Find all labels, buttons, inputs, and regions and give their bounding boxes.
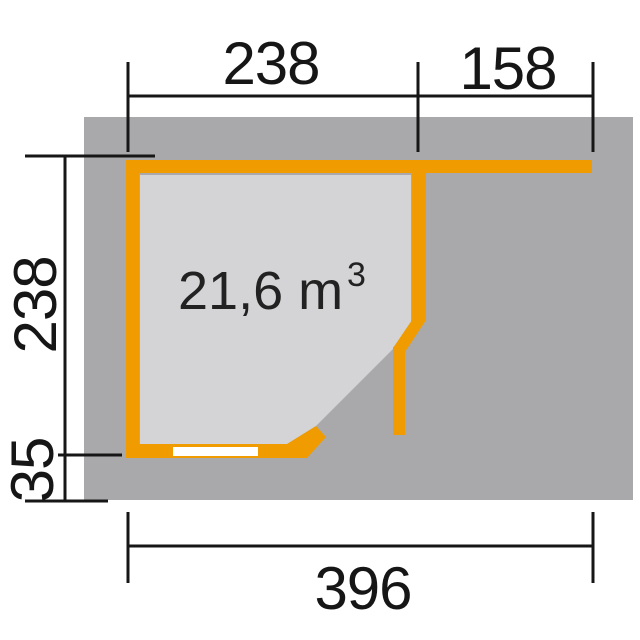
floor-plan-canvas: 238 158 238 35 396 21,6 m 3 bbox=[0, 0, 640, 640]
dimension-label-side-depth: 238 bbox=[2, 256, 69, 353]
dimension-label-side-overhang: 35 bbox=[0, 438, 66, 503]
floor-plan-diagram: 238 158 238 35 396 21,6 m 3 bbox=[0, 0, 640, 640]
dimension-label-top-annex-width: 158 bbox=[459, 35, 556, 102]
door-threshold bbox=[173, 447, 258, 456]
dimension-label-total-width: 396 bbox=[314, 555, 411, 622]
volume-label: 21,6 m bbox=[178, 261, 343, 321]
volume-label-superscript: 3 bbox=[347, 256, 366, 294]
left-wall bbox=[126, 160, 139, 458]
open-door-leaf bbox=[393, 347, 405, 435]
top-wall bbox=[126, 160, 592, 173]
dimension-label-top-room-width: 238 bbox=[222, 30, 319, 97]
right-wall bbox=[412, 160, 426, 320]
